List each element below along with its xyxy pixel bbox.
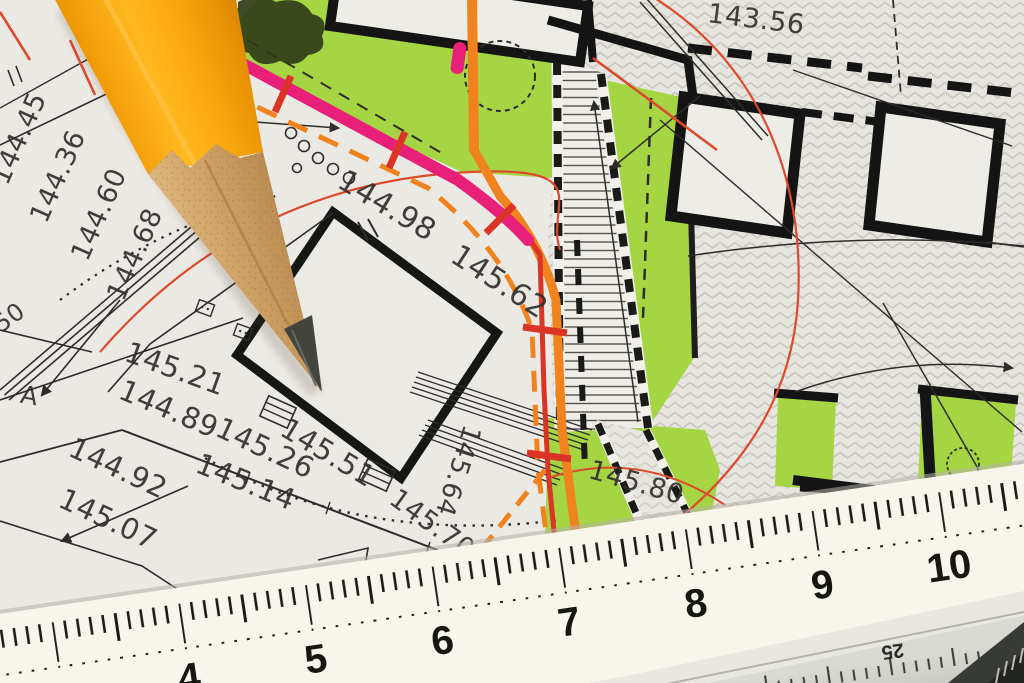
ruler-inverted-number: 25 [880,638,905,663]
green-patch-left [775,396,836,490]
building-right-2 [869,107,1000,242]
ruler-number: 10 [924,542,974,592]
orange-line-vertical [472,0,474,150]
site-plan-photo: 143.56 144.45 144.36 144.60 144.68 144.9… [0,0,1024,683]
building-right-1 [671,97,800,233]
site-plan-canvas: 143.56 144.45 144.36 144.60 144.68 144.9… [0,0,1024,683]
